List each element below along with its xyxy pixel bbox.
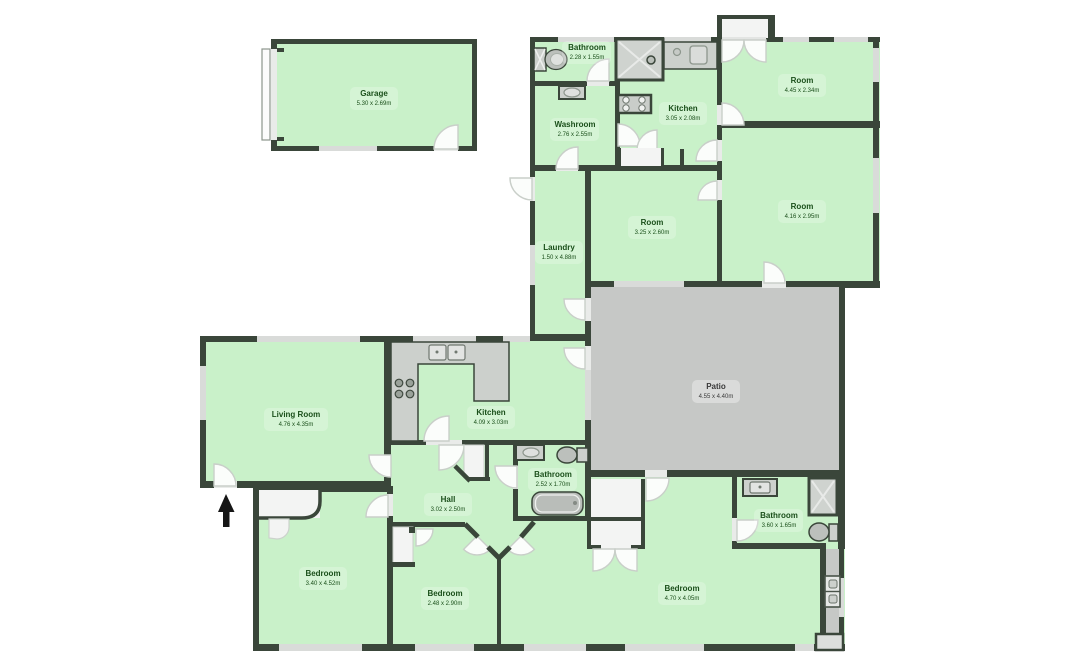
svg-text:Room: Room: [791, 76, 814, 85]
svg-text:2.28 x 1.55m: 2.28 x 1.55m: [570, 55, 605, 61]
svg-text:4.45 x 2.34m: 4.45 x 2.34m: [785, 88, 820, 94]
svg-text:Patio: Patio: [706, 382, 726, 391]
svg-text:4.76 x 4.35m: 4.76 x 4.35m: [279, 422, 314, 428]
svg-text:Bedroom: Bedroom: [305, 569, 340, 578]
svg-text:Hall: Hall: [441, 495, 456, 504]
svg-text:4.09 x 3.03m: 4.09 x 3.03m: [474, 420, 509, 426]
svg-text:3.25 x 2.60m: 3.25 x 2.60m: [635, 230, 670, 236]
svg-text:2.52 x 1.70m: 2.52 x 1.70m: [536, 482, 571, 488]
svg-text:Kitchen: Kitchen: [668, 104, 697, 113]
svg-text:3.02 x 2.50m: 3.02 x 2.50m: [431, 507, 466, 513]
svg-text:3.60 x 1.65m: 3.60 x 1.65m: [762, 523, 797, 529]
svg-text:Living Room: Living Room: [272, 410, 320, 419]
svg-text:Laundry: Laundry: [543, 243, 575, 252]
svg-text:Bathroom: Bathroom: [568, 43, 606, 52]
svg-text:5.30 x 2.69m: 5.30 x 2.69m: [357, 101, 392, 107]
svg-text:Kitchen: Kitchen: [476, 408, 505, 417]
svg-text:2.48 x 2.90m: 2.48 x 2.90m: [428, 601, 463, 607]
svg-text:3.05 x 2.08m: 3.05 x 2.08m: [666, 116, 701, 122]
svg-text:Bedroom: Bedroom: [664, 584, 699, 593]
svg-text:Bathroom: Bathroom: [760, 511, 798, 520]
svg-text:1.50 x 4.88m: 1.50 x 4.88m: [542, 255, 577, 261]
svg-text:3.40 x 4.52m: 3.40 x 4.52m: [306, 581, 341, 587]
svg-text:Room: Room: [791, 202, 814, 211]
svg-text:Washroom: Washroom: [554, 120, 595, 129]
svg-text:Bedroom: Bedroom: [427, 589, 462, 598]
svg-text:4.55 x 4.40m: 4.55 x 4.40m: [699, 394, 734, 400]
svg-text:2.76 x 2.55m: 2.76 x 2.55m: [558, 132, 593, 138]
svg-text:4.16 x 2.95m: 4.16 x 2.95m: [785, 214, 820, 220]
svg-text:Garage: Garage: [360, 89, 388, 98]
svg-text:4.70 x 4.05m: 4.70 x 4.05m: [665, 596, 700, 602]
svg-text:Room: Room: [641, 218, 664, 227]
svg-text:Bathroom: Bathroom: [534, 470, 572, 479]
